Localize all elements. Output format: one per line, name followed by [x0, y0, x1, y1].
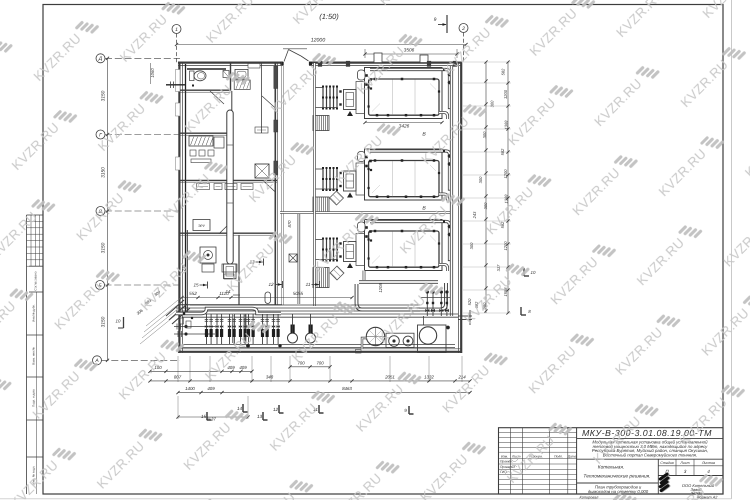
svg-text:3: 3	[684, 469, 687, 474]
svg-text:Лист: Лист	[511, 454, 521, 458]
svg-text:Д: Д	[98, 56, 103, 62]
svg-text:700: 700	[316, 360, 324, 365]
svg-text:4: 4	[707, 469, 710, 474]
svg-text:Подп. и дата: Подп. и дата	[32, 389, 36, 407]
svg-text:15: 15	[201, 414, 207, 419]
svg-text:3150: 3150	[101, 316, 107, 327]
svg-text:1332: 1332	[424, 375, 434, 380]
svg-text:дымоходов на отметку 0,000: дымоходов на отметку 0,000	[588, 489, 649, 494]
svg-text:1060: 1060	[150, 68, 155, 78]
svg-text:3150: 3150	[101, 90, 107, 101]
svg-text:300: 300	[469, 242, 474, 249]
svg-text:Проект.: Проект.	[500, 460, 513, 464]
svg-text:Подп.: Подп.	[554, 454, 563, 458]
svg-text:552: 552	[189, 291, 197, 296]
svg-text:1200: 1200	[503, 89, 508, 99]
svg-text:10: 10	[116, 319, 121, 324]
svg-text:1: 1	[175, 27, 178, 33]
svg-text:300: 300	[483, 202, 488, 209]
svg-text:409: 409	[239, 365, 247, 370]
svg-text:12: 12	[273, 407, 279, 412]
svg-text:1400: 1400	[185, 386, 195, 391]
svg-text:Стадия: Стадия	[660, 461, 674, 465]
svg-text:13: 13	[257, 414, 263, 419]
svg-text:2: 2	[461, 26, 465, 32]
svg-text:9: 9	[434, 17, 437, 23]
svg-text:Инв.№ дубл.: Инв.№ дубл.	[32, 304, 36, 322]
svg-text:Лист: Лист	[679, 461, 689, 465]
svg-text:Копировал: Копировал	[580, 495, 600, 499]
svg-text:1200: 1200	[503, 241, 508, 251]
svg-text:300: 300	[490, 100, 495, 107]
svg-text:5055: 5055	[293, 291, 304, 296]
svg-text:807: 807	[174, 375, 182, 380]
svg-text:1368: 1368	[504, 120, 509, 130]
svg-text:3150: 3150	[101, 242, 107, 253]
svg-text:520: 520	[467, 298, 472, 305]
svg-text:300: 300	[478, 176, 483, 183]
svg-text:243: 243	[472, 211, 477, 219]
svg-text:Изм.: Изм.	[501, 454, 508, 458]
svg-text:348: 348	[266, 375, 274, 380]
svg-text:2051: 2051	[384, 375, 395, 380]
svg-text:409: 409	[207, 386, 215, 391]
svg-text:Взам. инв.№: Взам. инв.№	[32, 346, 36, 365]
svg-text:870: 870	[287, 220, 292, 228]
svg-text:9: 9	[404, 408, 407, 413]
svg-text:12000: 12000	[311, 38, 326, 44]
svg-text:(1:50): (1:50)	[319, 12, 339, 21]
svg-text:317: 317	[496, 264, 501, 271]
svg-text:14: 14	[237, 406, 243, 411]
svg-text:ЭРУ: ЭРУ	[198, 224, 206, 228]
svg-text:11: 11	[306, 282, 311, 287]
svg-text:300: 300	[482, 131, 487, 138]
svg-text:8463: 8463	[342, 386, 352, 391]
svg-text:Восточный портал Северомуйског: Восточный портал Северомуйского тоннеля.	[603, 453, 697, 458]
svg-text:15: 15	[193, 283, 199, 288]
svg-text:10: 10	[531, 270, 536, 275]
svg-text:12: 12	[268, 282, 274, 287]
svg-text:3150: 3150	[101, 167, 107, 178]
svg-text:Тепломеханические решения.: Тепломеханические решения.	[583, 474, 650, 480]
svg-text:Листов: Листов	[701, 461, 715, 465]
svg-text:Согласовано: Согласовано	[34, 271, 38, 290]
svg-text:582: 582	[500, 148, 505, 155]
svg-text:Дата: Дата	[567, 454, 577, 458]
svg-text:1200: 1200	[503, 169, 508, 179]
svg-text:582: 582	[501, 68, 506, 75]
svg-text:1208: 1208	[378, 283, 383, 293]
